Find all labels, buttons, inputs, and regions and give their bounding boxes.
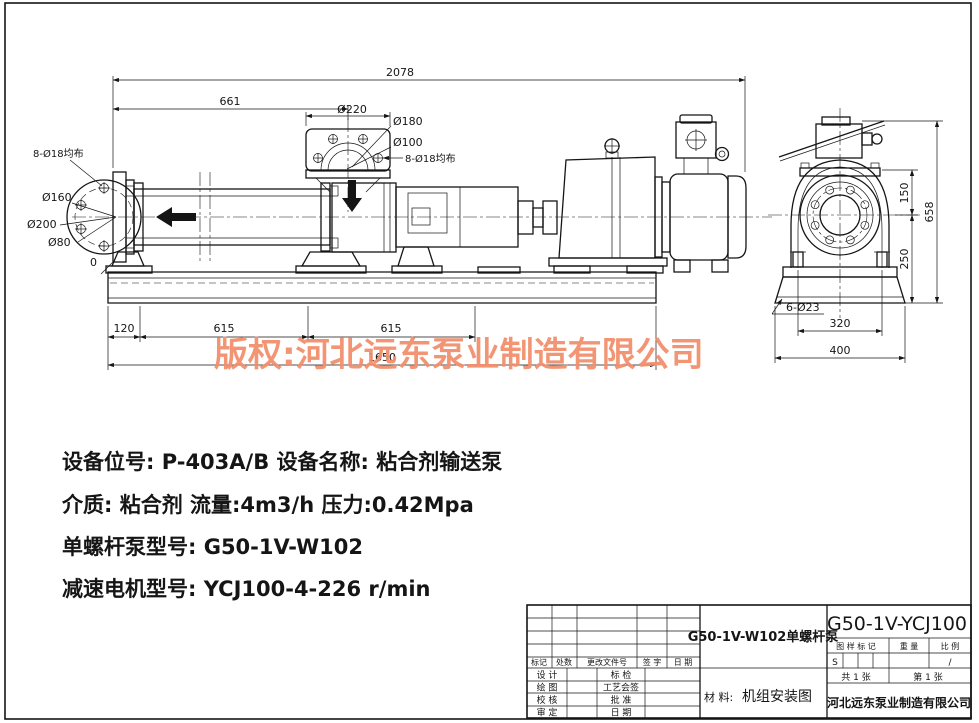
dim-base-seg1: 120 [114,322,135,335]
dim-base-seg3: 615 [381,322,402,335]
suction-chamber [332,183,396,252]
dim-suction-bore: Ø80 [48,236,71,249]
flow-arrow-down [342,180,362,212]
dim-flange-to-center: 150 [898,183,911,204]
rev-header-docno: 更改文件号 [587,657,627,667]
watermark-text: 版权:河北远东泵业制造有限公司 [214,335,704,375]
drawing-title: G50-1V-W102单螺杆泵 [688,629,839,645]
dim-base-seg2: 615 [214,322,235,335]
dim-suction-bolts: 8-Ø18均布 [33,148,84,160]
dim-anchor-holes: 6-Ø23 [786,301,820,314]
end-terminal-box [779,117,885,161]
sign-design: 设 计 [537,669,558,681]
sign-check: 校 核 [537,694,558,706]
rev-header-date: 日 期 [674,658,693,667]
sign-std-check: 标 检 [611,669,632,681]
rev-header-mark: 标记 [531,657,547,667]
dim-discharge-bore: Ø100 [393,136,423,149]
sign-date: 日 期 [611,708,632,719]
gear-reducer [549,138,667,273]
assembly-drawing: 2078 661 Ø220 Ø180 Ø100 8-Ø18均布 8-Ø18均布 … [0,0,979,723]
pump-supports [106,247,520,273]
dim-suction-od: Ø200 [27,218,57,231]
dim-bolt-span: 320 [830,317,851,330]
dim-suction-bolt-circle: Ø160 [42,191,72,204]
dim-datum-zero: 0 [90,256,97,269]
drawing-sheet: 2078 661 Ø220 Ø180 Ø100 8-Ø18均布 8-Ø18均布 … [0,0,979,723]
stamp-scale-label: 比 例 [941,641,960,651]
material-label: 材 料: [704,690,733,704]
terminal-box [676,115,729,174]
lifting-eye-bolt [604,138,620,158]
stamp-weight-label: 重 量 [900,641,919,651]
stamp-mark-label: 图 样 标 记 [836,641,876,651]
rev-header-count: 处数 [556,657,572,667]
spec-line-3: 单螺杆泵型号: G50-1V-W102 [62,535,363,559]
base-frame [108,272,656,303]
company-name: 河北远东泵业制造有限公司 [826,695,971,710]
end-view [768,108,920,318]
sign-draw: 绘 图 [537,682,558,694]
dim-center-to-base: 250 [898,249,911,270]
motor [655,115,746,272]
dimensions-side-view: 2078 661 Ø220 Ø180 Ø100 8-Ø18均布 8-Ø18均布 … [27,66,745,370]
dim-inlet-to-discharge: 661 [220,95,241,108]
coupling [518,201,557,234]
stamp-scale-value: / [948,658,952,668]
spec-line-2: 介质: 粘合剂 流量:4m3/h 压力:0.42Mpa [61,493,474,517]
dim-total-height: 658 [923,202,936,223]
sheet-number: 第 1 张 [913,671,942,683]
dim-discharge-od: Ø220 [337,103,367,116]
rev-header-sign: 签 字 [643,657,662,667]
sheets-total: 共 1 张 [841,672,870,683]
spec-line-4: 减速电机型号: YCJ100-4-226 r/min [62,577,430,601]
sign-approve: 审 定 [537,707,558,719]
spec-text-block: 设备位号: P-403A/B 设备名称: 粘合剂输送泵 介质: 粘合剂 流量:4… [61,450,502,601]
sign-ratify: 批 准 [611,694,632,706]
dim-total-length: 2078 [386,66,414,79]
model-number: G50-1V-YCJ100 [827,613,967,635]
title-block: 标记 处数 更改文件号 签 字 日 期 设 计 绘 图 校 核 审 定 标 检 … [527,605,971,719]
stamp-mark-value: S [832,658,838,668]
dim-discharge-bolts: 8-Ø18均布 [405,153,456,165]
spec-line-1: 设备位号: P-403A/B 设备名称: 粘合剂输送泵 [62,450,502,474]
dim-discharge-bolt-circle: Ø180 [393,115,423,128]
material-value: 机组安装图 [742,689,812,705]
flow-arrow-left [156,207,196,227]
dim-base-width: 400 [830,344,851,357]
sign-process-sign: 工艺会签 [603,682,639,694]
